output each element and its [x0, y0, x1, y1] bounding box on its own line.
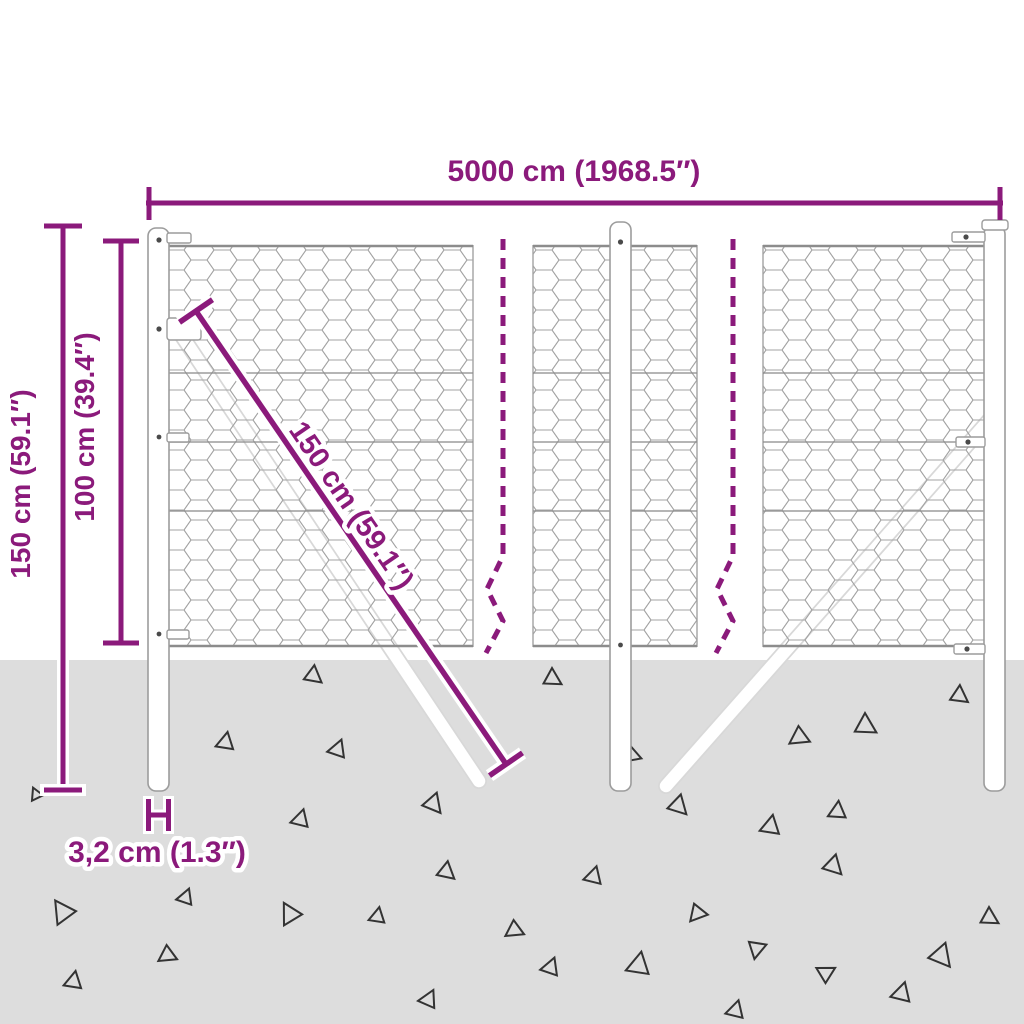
mesh-height-dimension-label: 100 cm (39.4″) [69, 332, 100, 521]
width-dimension-label: 5000 cm (1968.5″) [448, 155, 701, 188]
post-diameter-dimension-label: 3,2 cm (1.3″) [68, 836, 246, 869]
fence-post-middle [610, 222, 631, 791]
diagram-svg: 5000 cm (1968.5″) 150 cm (59.1″) 100 cm … [0, 0, 1024, 1024]
fence-dimension-diagram: 5000 cm (1968.5″) 150 cm (59.1″) 100 cm … [0, 0, 1024, 1024]
total-height-dimension-label: 150 cm (59.1″) [5, 389, 36, 578]
